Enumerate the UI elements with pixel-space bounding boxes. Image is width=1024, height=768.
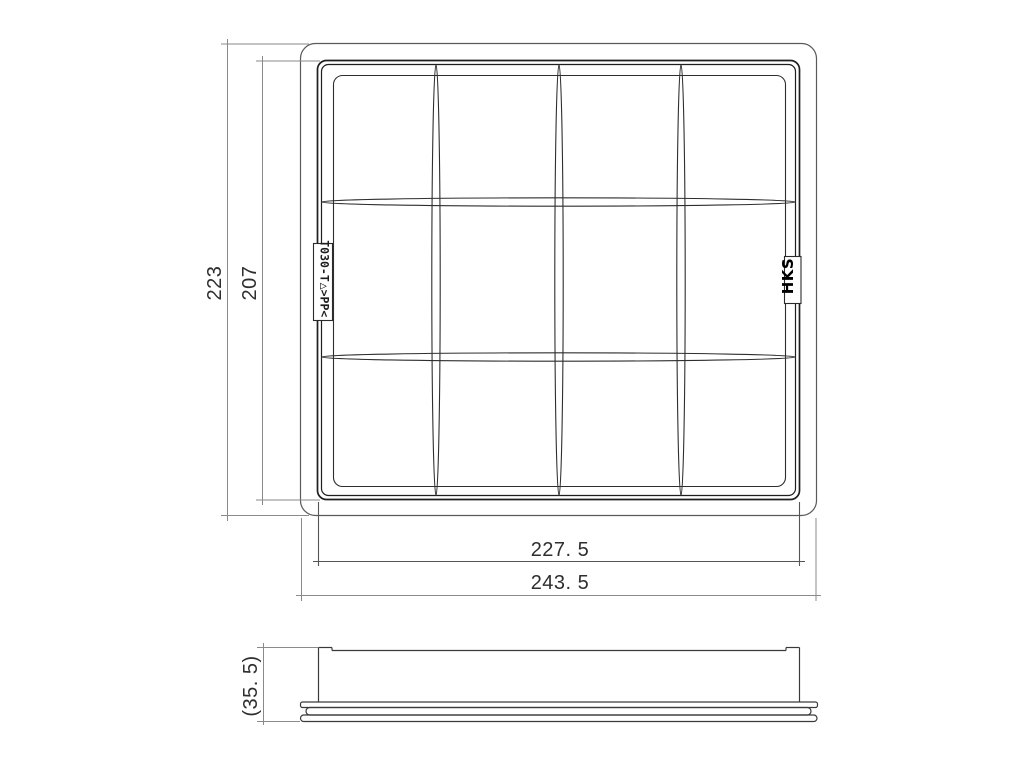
rib-vertical-2 [555, 65, 563, 496]
top-view-outer-frame [301, 44, 817, 516]
side-flange-bottom-strip [301, 715, 818, 722]
side-flange-top-strip [301, 702, 818, 708]
side-view: (35. 5) [240, 643, 818, 725]
technical-drawing-canvas: T030-T △>PP< HKS 223 207 227. 5 243. 5 [0, 0, 1024, 768]
plan-dimensions: 223 207 227. 5 243. 5 [204, 39, 821, 601]
brand-logo-text: HKS [779, 258, 797, 294]
part-label-tab: T030-T △>PP< [314, 240, 333, 320]
drawing-page: T030-T △>PP< HKS 223 207 227. 5 243. 5 [0, 0, 1024, 768]
dim-35-label: (35. 5) [240, 655, 262, 716]
top-view-seal-wall-outer [318, 61, 800, 500]
material-mark-text: △>PP< [318, 283, 332, 318]
top-view-seal-wall-inner [322, 65, 796, 496]
dim-227-label: 227. 5 [531, 539, 590, 561]
rib-grid [322, 65, 796, 496]
brand-logo: HKS [779, 257, 801, 304]
part-code-text: T030-T [318, 240, 332, 282]
rib-vertical-1 [432, 65, 440, 496]
top-view-opening [334, 76, 786, 487]
rib-vertical-3 [677, 65, 685, 496]
dim-223-label: 223 [204, 266, 226, 301]
rib-horizontal-1 [322, 198, 796, 206]
dim-243-label: 243. 5 [531, 572, 590, 594]
side-seal-groove-strip [306, 708, 811, 716]
top-view: T030-T △>PP< HKS [301, 44, 817, 516]
rib-horizontal-2 [322, 353, 796, 361]
dim-207-label: 207 [239, 266, 261, 301]
